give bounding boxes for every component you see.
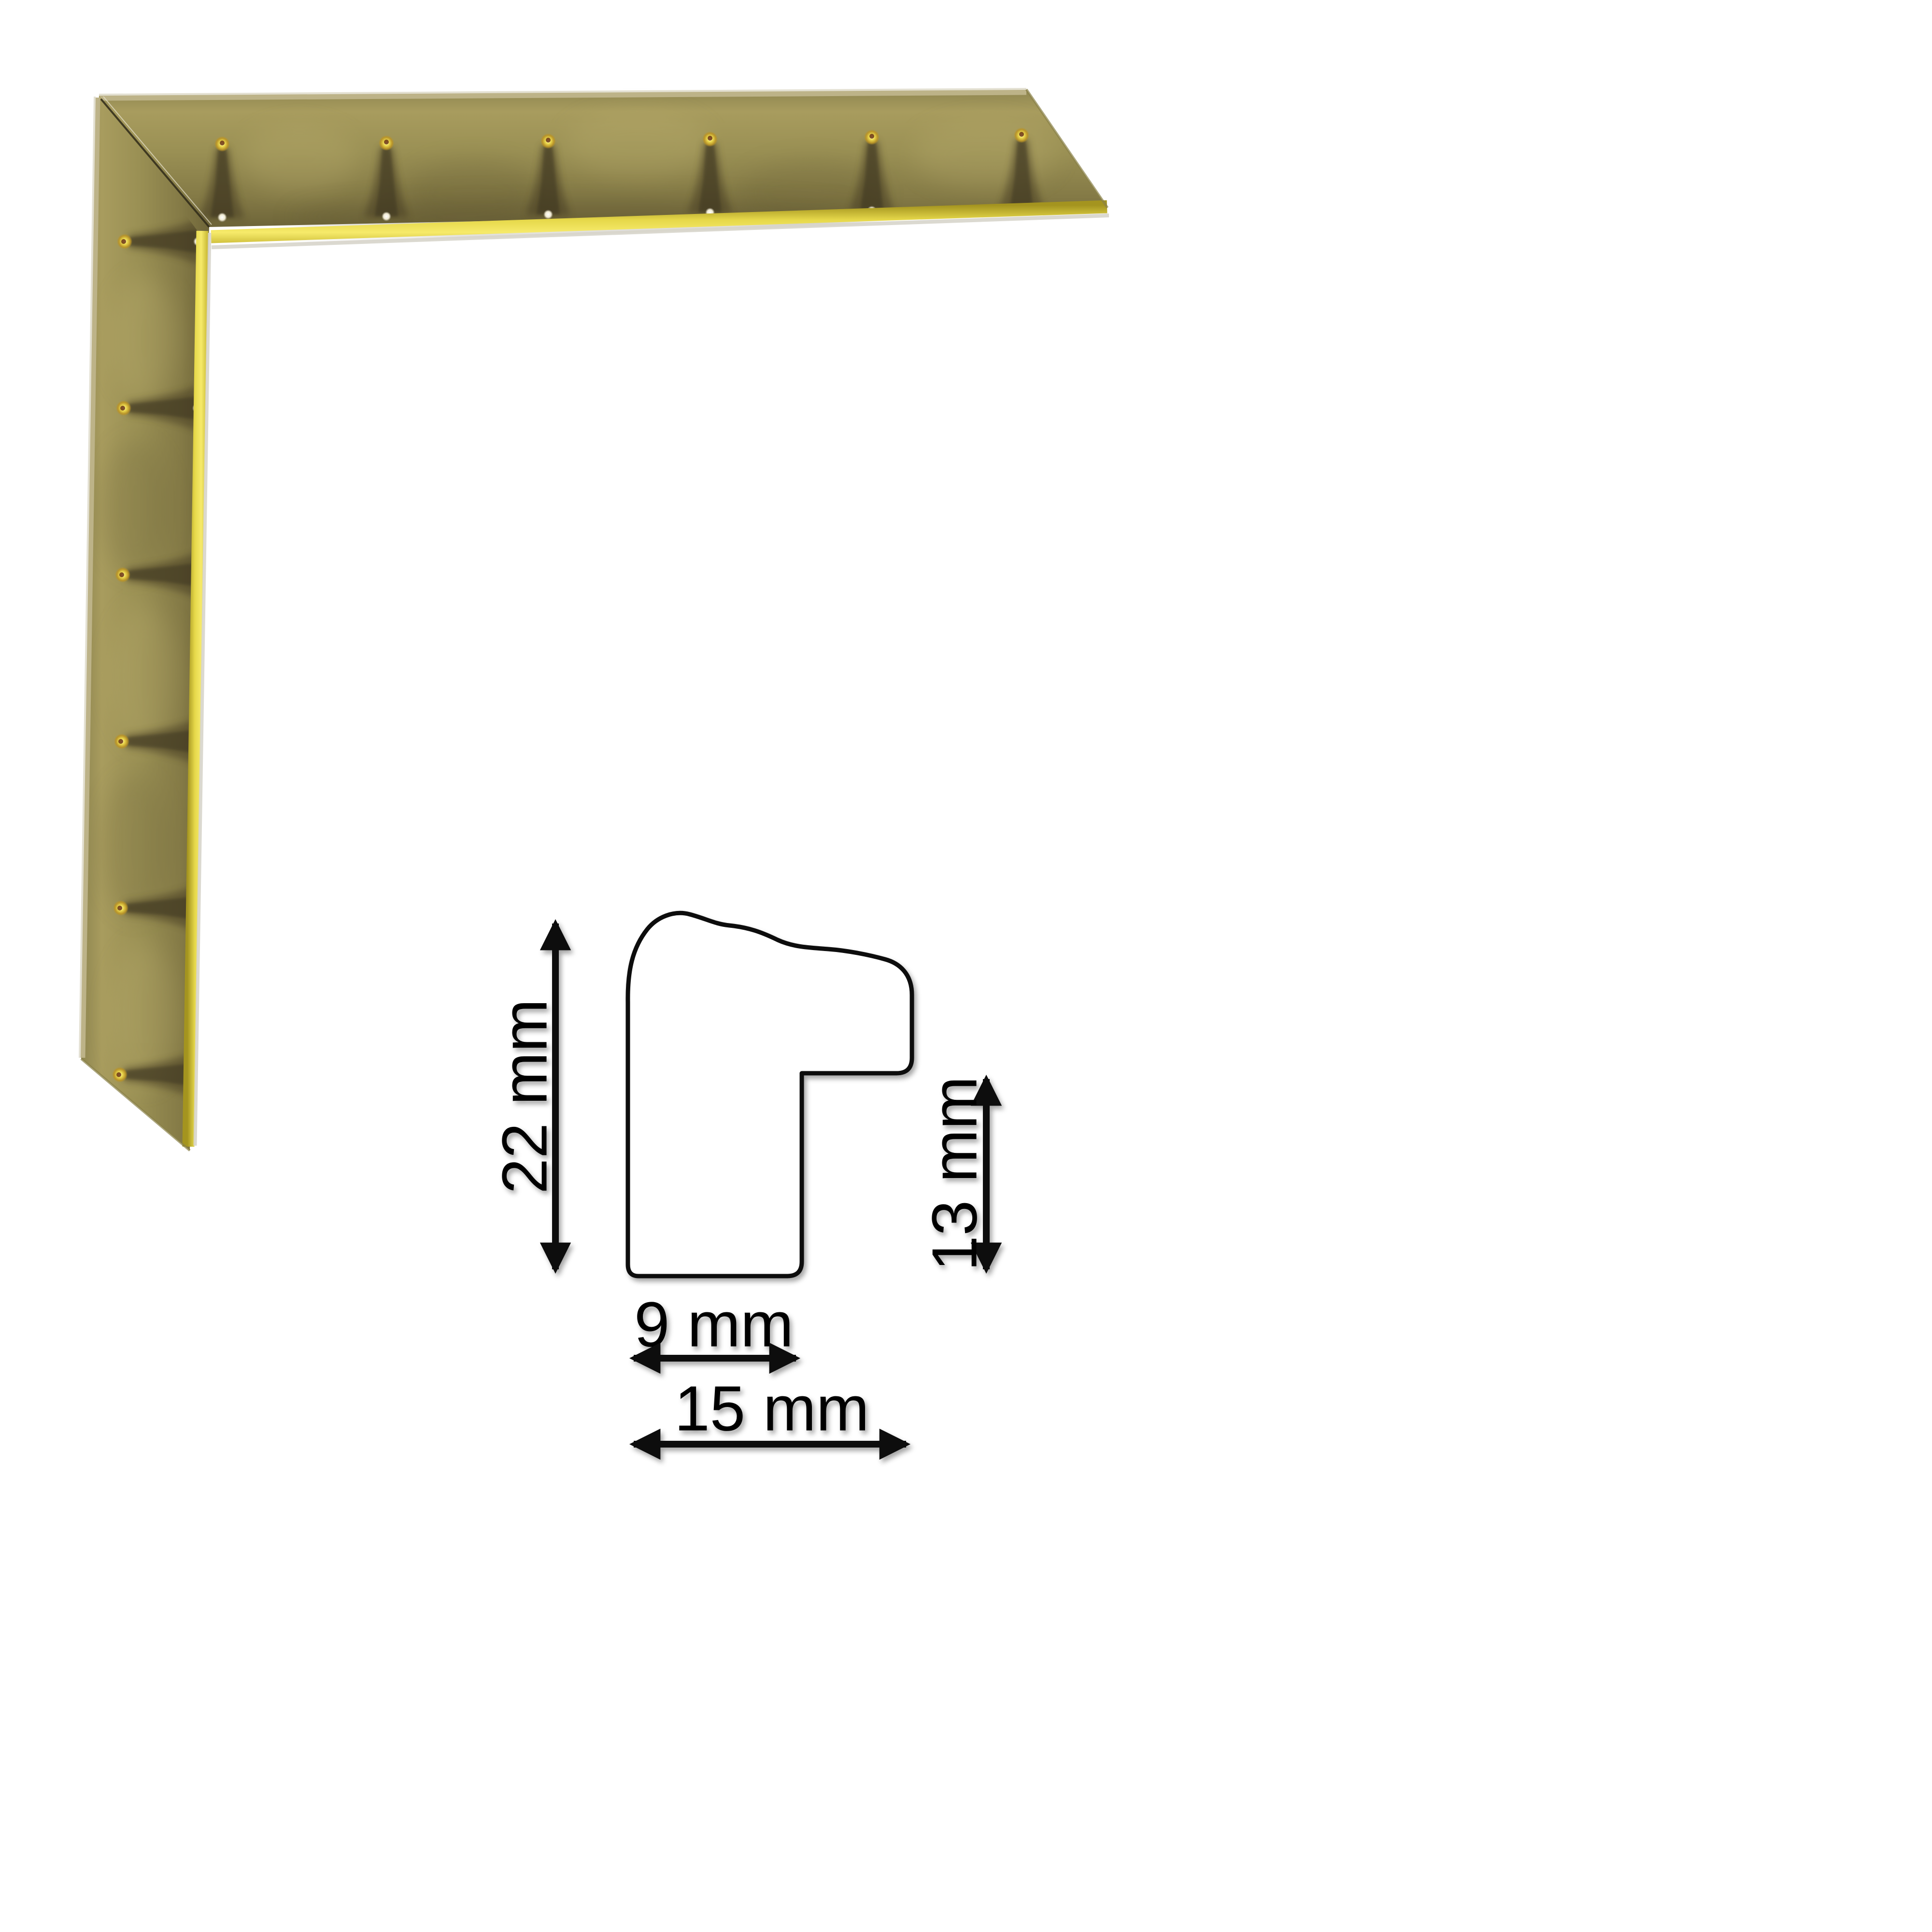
profile-outline [628,913,912,1276]
frame-rail-horizontal [99,89,1109,247]
total-height-label: 22 mm [489,999,560,1193]
total-width-label: 15 mm [674,1373,869,1444]
frame-rail-vertical [80,96,210,1151]
rabbet-height-label: 13 mm [919,1076,990,1271]
profile-dimension-diagram: 22 mm 13 mm 9 mm 15 mm [489,913,990,1444]
frame-corner-photo [80,89,1109,1151]
product-image: 22 mm 13 mm 9 mm 15 mm [0,0,1932,1932]
frame-visual: 22 mm 13 mm 9 mm 15 mm [0,0,1932,1932]
face-width-label: 9 mm [634,1289,794,1360]
